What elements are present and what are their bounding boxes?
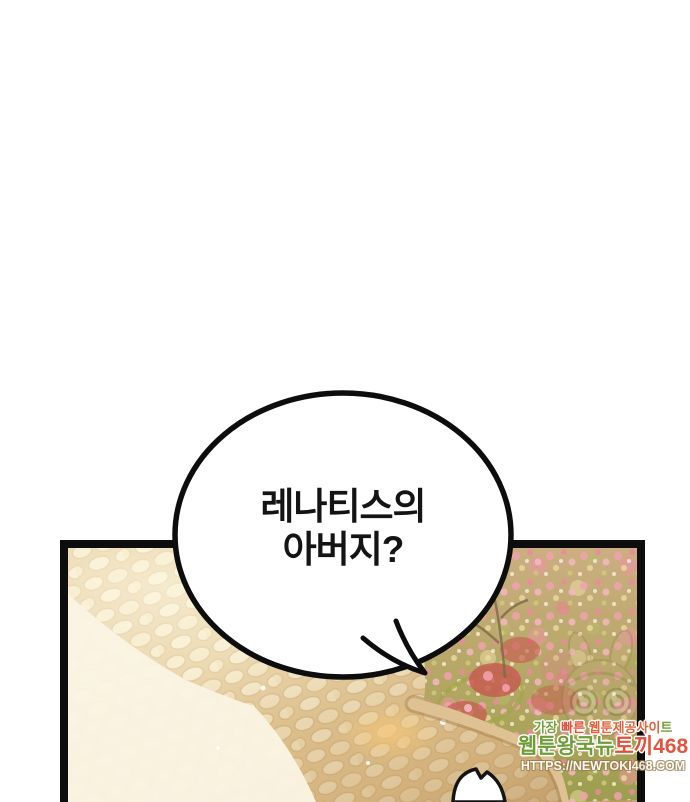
speech-bubble-text: 레나티스의 아버지? xyxy=(170,486,516,572)
watermark-line2: 웹툰왕국뉴토끼468 xyxy=(513,736,690,758)
site-watermark: 가장 빠른 웹툰제공사이트 웹툰왕국뉴토끼468 HTTPS://NEWTOKI… xyxy=(513,721,690,773)
speech-line-1: 레나티스의 xyxy=(170,486,516,529)
comic-page: 레나티스의 아버지? 가장 빠른 웹툰제공사이트 웹툰왕국뉴토끼468 HTTP… xyxy=(0,0,690,800)
watermark-line1: 가장 빠른 웹툰제공사이트 xyxy=(513,721,690,735)
speech-line-2: 아버지? xyxy=(170,529,516,572)
watermark-url: HTTPS://NEWTOKI468.COM xyxy=(513,760,690,773)
